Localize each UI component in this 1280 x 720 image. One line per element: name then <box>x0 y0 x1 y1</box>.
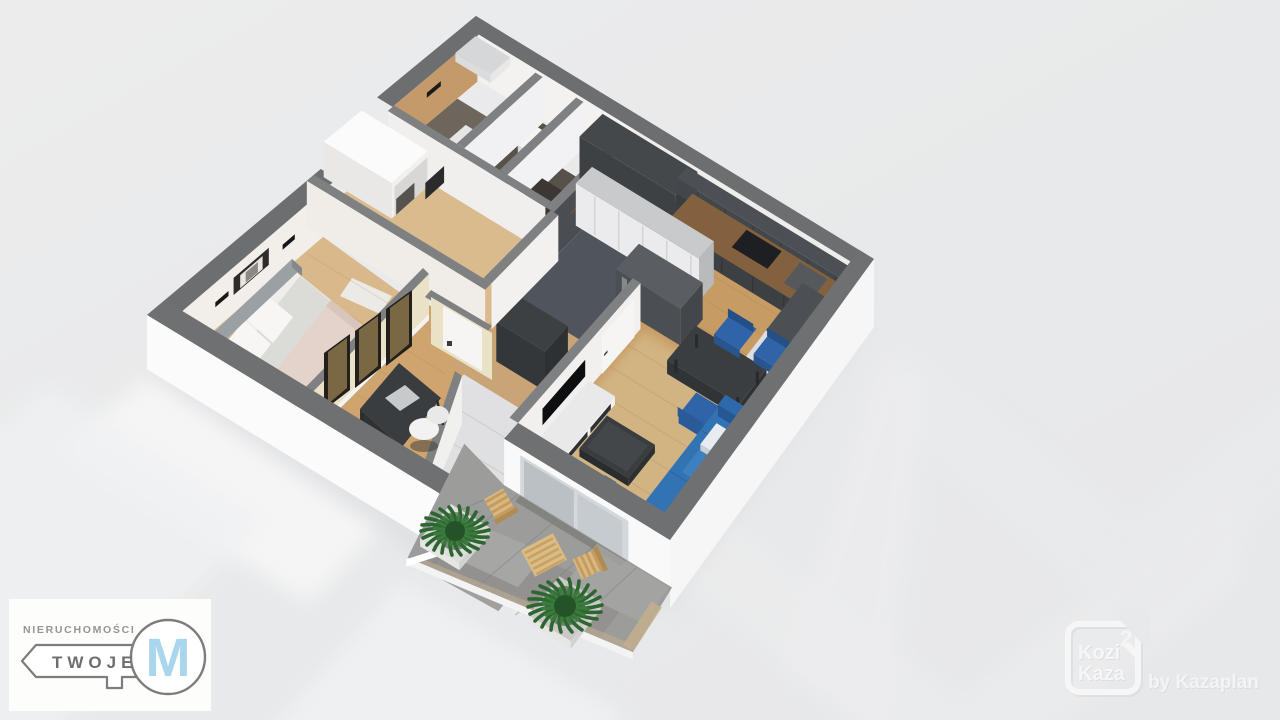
svg-text:TWOJE: TWOJE <box>52 653 137 672</box>
svg-text:NIERUCHOMOŚCI: NIERUCHOMOŚCI <box>23 623 136 636</box>
svg-text:M: M <box>146 628 191 688</box>
svg-text:Kaza: Kaza <box>1078 663 1126 685</box>
svg-text:Kozi: Kozi <box>1078 642 1120 664</box>
svg-text:2: 2 <box>1120 626 1132 651</box>
svg-text:by Kazaplan: by Kazaplan <box>1148 672 1259 693</box>
